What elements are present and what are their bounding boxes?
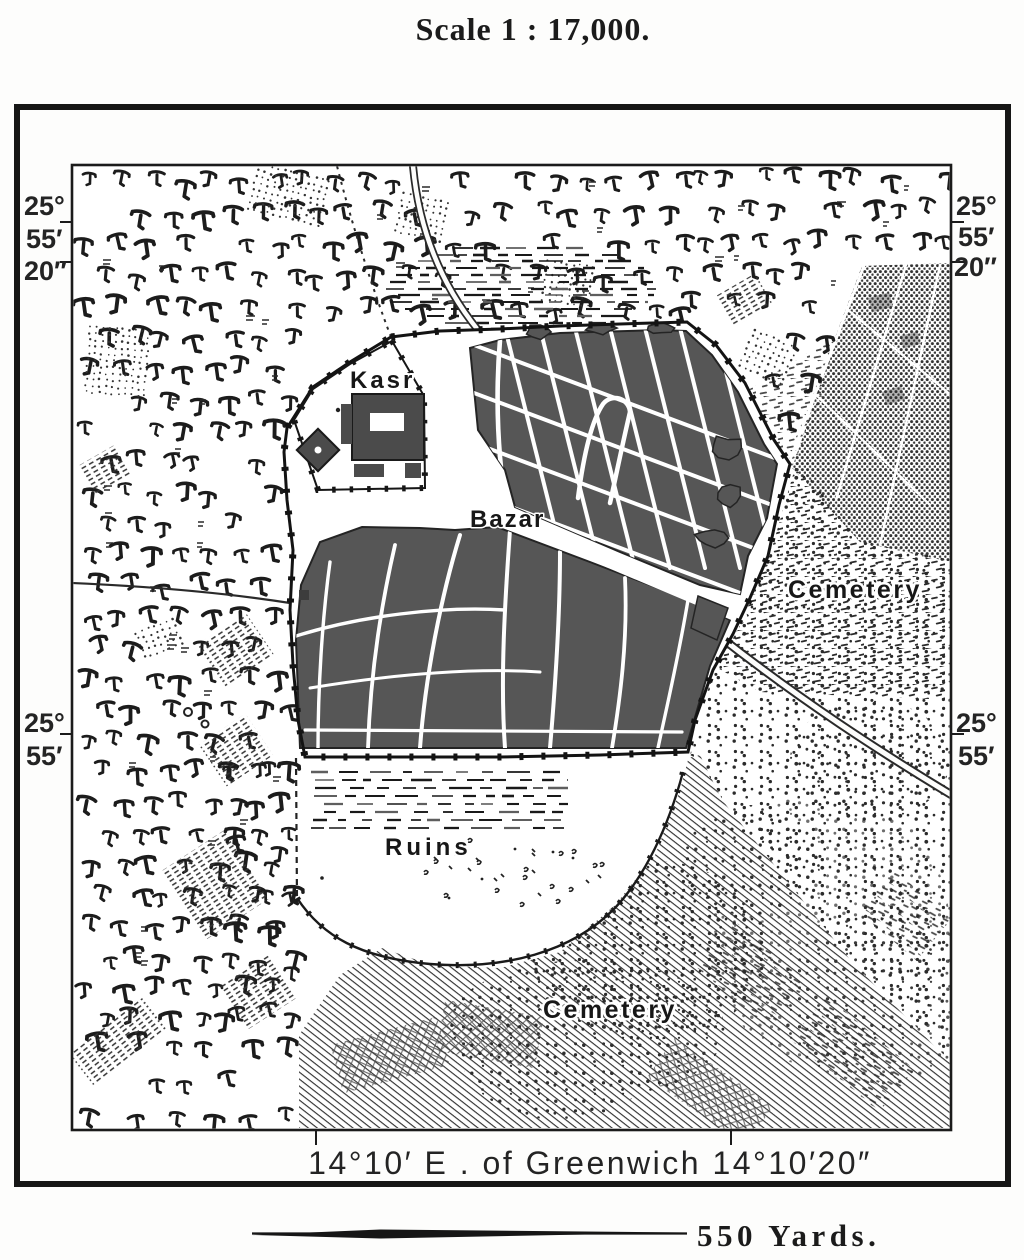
svg-text:20″: 20″ (954, 252, 997, 282)
svg-text:Scale 1 : 17,000.: Scale 1 : 17,000. (416, 11, 651, 47)
svg-text:Bazar: Bazar (470, 506, 545, 533)
svg-text:Ruins: Ruins (385, 834, 472, 861)
svg-text:20″: 20″ (24, 256, 67, 286)
svg-text:Cemetery: Cemetery (788, 576, 922, 604)
svg-text:55′: 55′ (958, 741, 995, 771)
svg-text:55′: 55′ (26, 741, 63, 771)
svg-text:25°: 25° (24, 708, 65, 738)
svg-text:55′: 55′ (26, 224, 63, 254)
svg-text:550 Yards.: 550 Yards. (697, 1218, 880, 1253)
svg-text:25°: 25° (956, 708, 997, 738)
svg-text:55′: 55′ (958, 222, 995, 252)
svg-text:Cemetery: Cemetery (543, 996, 677, 1024)
svg-text:25°: 25° (24, 191, 65, 221)
svg-text:Kasr: Kasr (350, 367, 415, 394)
svg-text:25°: 25° (956, 191, 997, 221)
svg-text:14°10′ E . of Greenwich 14°10′: 14°10′ E . of Greenwich 14°10′20″ (308, 1145, 872, 1181)
